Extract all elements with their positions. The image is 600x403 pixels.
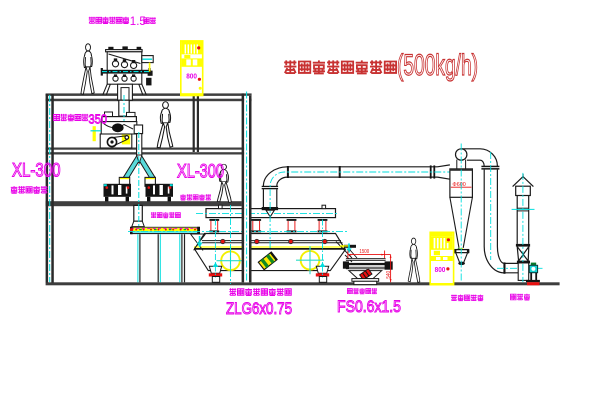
svg-text:350: 350 — [89, 111, 108, 126]
svg-text:Φ600: Φ600 — [452, 182, 465, 188]
svg-text:ZLG6x0.75: ZLG6x0.75 — [226, 299, 292, 318]
svg-text:(500kg/h): (500kg/h) — [397, 49, 478, 82]
svg-text:540: 540 — [386, 271, 392, 279]
svg-text:800: 800 — [435, 265, 446, 274]
svg-text:XL-300: XL-300 — [12, 160, 61, 181]
svg-text:FS0.6x1.5: FS0.6x1.5 — [337, 297, 401, 316]
svg-text:1500: 1500 — [359, 249, 369, 255]
svg-text:800: 800 — [186, 72, 197, 81]
svg-text:XL-300: XL-300 — [177, 161, 224, 182]
